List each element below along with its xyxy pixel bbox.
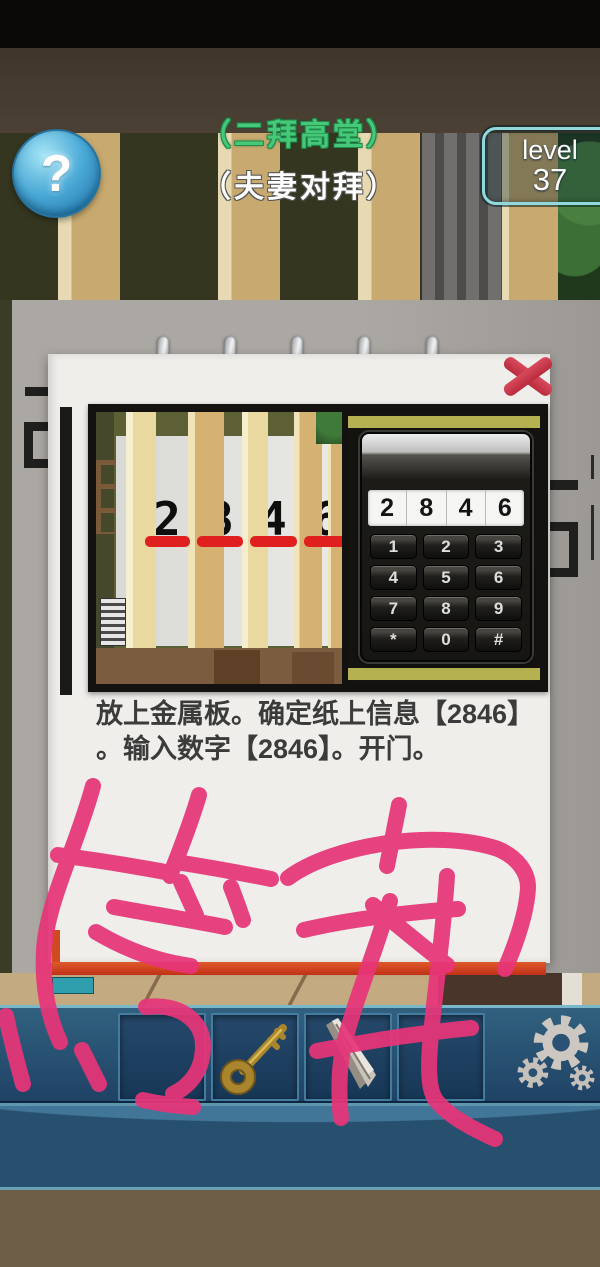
- level-badge: level 37: [482, 127, 600, 205]
- hint-text-line1: 放上金属板。确定纸上信息【2846】: [96, 697, 548, 732]
- notepad-under-sheet: [52, 962, 546, 975]
- keypad-key-8: 8: [423, 596, 470, 621]
- gear-icon: [510, 1011, 598, 1099]
- plant-corner: [316, 412, 342, 444]
- radiator: [100, 598, 126, 646]
- help-button[interactable]: ?: [12, 129, 101, 218]
- fence-pillar: [358, 133, 420, 301]
- wood-slat: [242, 412, 268, 684]
- keypad-key-0: 0: [423, 627, 470, 652]
- keypad-key-4: 4: [370, 565, 417, 590]
- keypad-key-6: 6: [475, 565, 522, 590]
- door-line: [591, 455, 594, 479]
- keypad-key-hash: #: [475, 627, 522, 652]
- scene-detail: [287, 973, 308, 1005]
- close-button[interactable]: X: [500, 352, 556, 402]
- top-black-bar: [0, 0, 600, 48]
- wood-slat: [328, 412, 342, 684]
- wall-trim: [348, 416, 540, 428]
- wall-trim: [348, 668, 540, 680]
- keypad-display-digit: 4: [446, 490, 485, 526]
- question-mark-icon: ?: [41, 144, 73, 204]
- red-underline: [145, 536, 190, 547]
- wood-slat: [294, 412, 322, 684]
- floor-scene-strip: [0, 973, 600, 1005]
- level-number: 37: [533, 164, 567, 197]
- keypad-display-digit: 8: [406, 490, 445, 526]
- settings-button[interactable]: [510, 1011, 598, 1099]
- fence-pillar: [218, 133, 280, 301]
- keypad-keys: 1 2 3 4 5 6 7 8 9 * 0 #: [370, 534, 522, 652]
- keypad-display: 2 8 4 6: [368, 490, 524, 526]
- inventory-slot-3[interactable]: [304, 1013, 392, 1101]
- photo-edge-strip: [60, 407, 72, 695]
- door-line: [591, 505, 594, 560]
- keypad-key-1: 1: [370, 534, 417, 559]
- furniture-silhouette: [292, 652, 334, 684]
- keypad-display-digit: 2: [368, 490, 406, 526]
- door-mark: [550, 480, 578, 490]
- inventory-lower-panel: [0, 1106, 600, 1187]
- scene-detail: [52, 977, 94, 994]
- hint-text-line2: 。输入数字【2846】。开门。: [96, 732, 548, 767]
- game-screen: 2 8 4 6 2 8 4: [0, 0, 600, 1267]
- inventory-slot-2[interactable]: [211, 1013, 299, 1101]
- keypad-key-5: 5: [423, 565, 470, 590]
- key-icon[interactable]: [213, 1015, 297, 1099]
- red-underline: [304, 536, 342, 547]
- door-mark: [550, 522, 578, 577]
- inventory-slot-4[interactable]: [397, 1013, 485, 1101]
- photo-paper-scene: 2 8 4 6: [96, 412, 342, 684]
- door-mark: [24, 422, 51, 468]
- keypad-key-7: 7: [370, 596, 417, 621]
- level-label: level: [522, 136, 578, 164]
- keypad-key-3: 3: [475, 534, 522, 559]
- wall-edge: [0, 300, 12, 975]
- keypad-key-star: *: [370, 627, 417, 652]
- keypad-key-2: 2: [423, 534, 470, 559]
- red-underline: [197, 536, 243, 547]
- scene-detail: [438, 973, 562, 1005]
- inventory-bar: [0, 1005, 600, 1190]
- notepad-under-sheet: [52, 930, 60, 966]
- hint-photo: 2 8 4 6 2 8 4: [88, 404, 548, 692]
- keypad-key-9: 9: [475, 596, 522, 621]
- wood-slat: [126, 412, 156, 684]
- red-underline: [250, 536, 297, 547]
- metal-plate-icon[interactable]: [306, 1015, 390, 1099]
- room-floor: [0, 1190, 600, 1267]
- keypad-display-digit: 6: [485, 490, 524, 526]
- scene-detail: [562, 973, 582, 1005]
- inventory-slot-1[interactable]: [118, 1013, 206, 1101]
- scene-detail: [141, 973, 162, 1005]
- door-keypad: 2 8 4 6 1 2 3 4 5 6 7 8 9 * 0 #: [360, 432, 532, 662]
- furniture-silhouette: [214, 650, 260, 684]
- photo-keypad-scene: 2 8 4 6 1 2 3 4 5 6 7 8 9 * 0 #: [348, 412, 540, 684]
- wood-slat: [188, 412, 224, 684]
